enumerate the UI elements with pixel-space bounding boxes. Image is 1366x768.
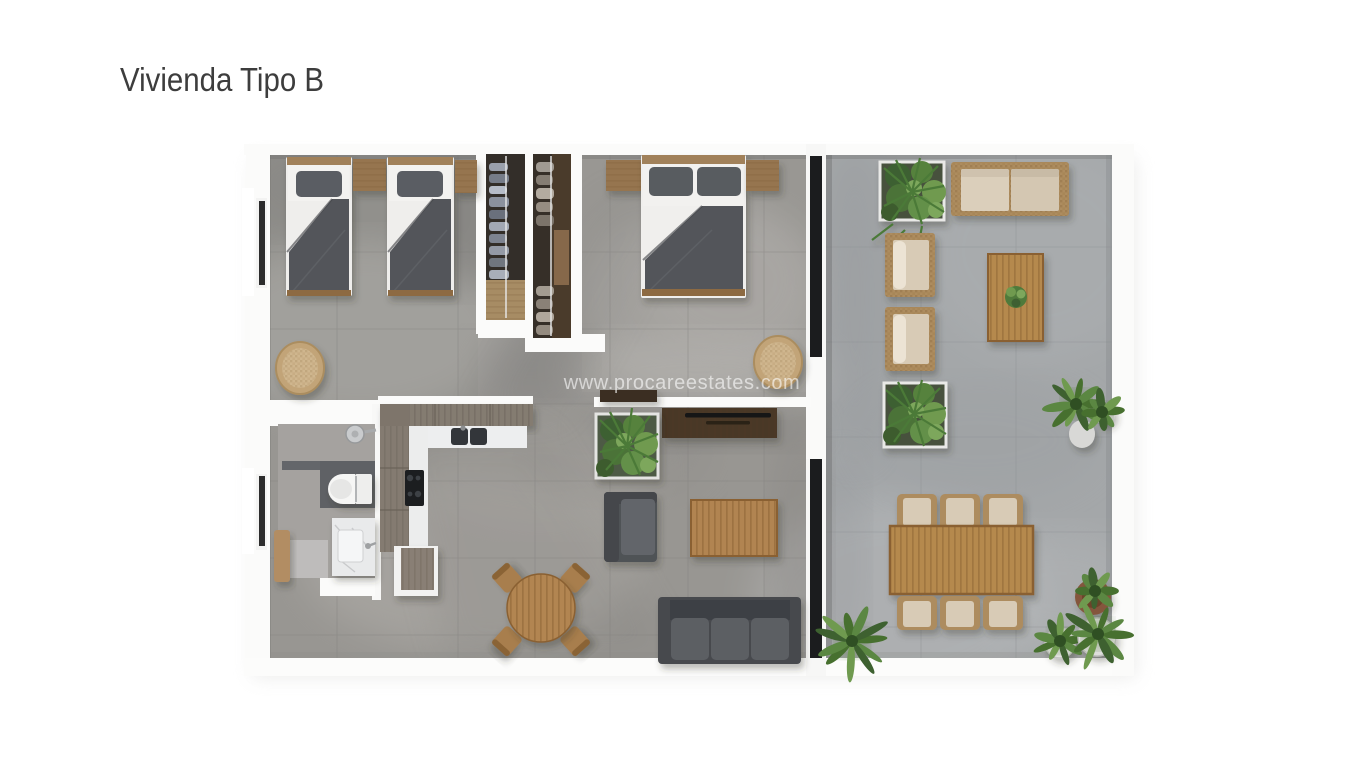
svg-text:Vivienda Tipo B: Vivienda Tipo B: [120, 61, 324, 98]
svg-text:www.procareestates.com: www.procareestates.com: [563, 372, 801, 394]
